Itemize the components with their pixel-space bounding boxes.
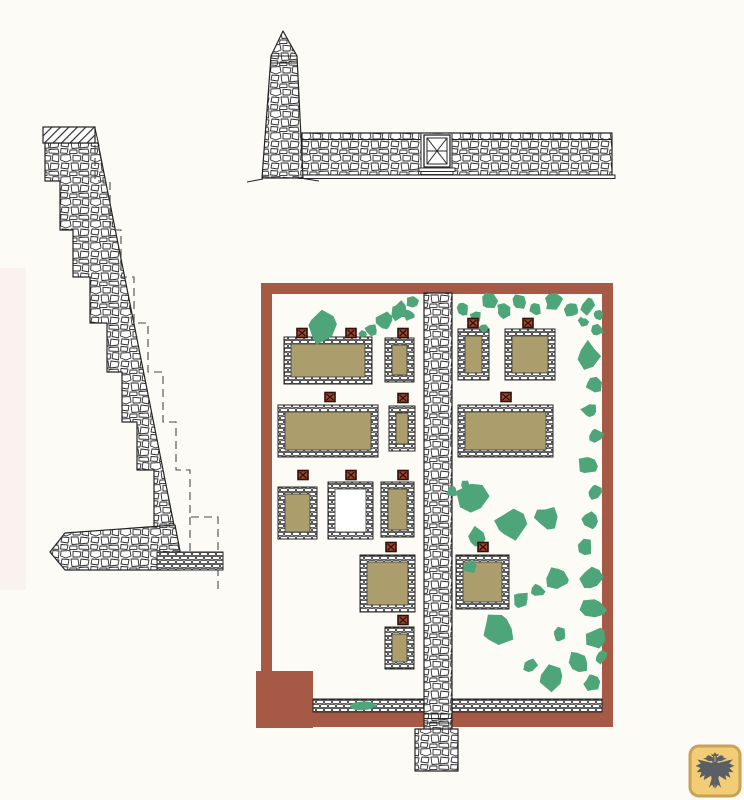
post-marker	[398, 394, 408, 403]
building	[360, 555, 415, 612]
gate-threshold-step	[421, 172, 453, 175]
building	[381, 482, 414, 537]
building-interior-open	[335, 489, 366, 532]
post-marker	[325, 393, 335, 402]
central-dividing-wall	[424, 293, 452, 730]
building	[278, 487, 317, 539]
building	[278, 405, 378, 457]
post-marker	[468, 319, 478, 328]
wooden-gate	[419, 134, 455, 175]
building-interior	[392, 634, 407, 662]
post-marker	[386, 543, 396, 552]
paper-background	[0, 0, 744, 800]
building-interior	[465, 336, 482, 373]
post-marker	[298, 471, 308, 480]
post-marker	[501, 393, 511, 402]
post-marker	[398, 329, 408, 338]
building	[458, 405, 553, 457]
bottom-stone-strip-east	[452, 699, 602, 712]
paper-tint-strip	[0, 268, 26, 590]
section-cap-hatch	[43, 127, 95, 143]
building-interior	[392, 345, 407, 375]
building	[389, 406, 415, 451]
building-interior	[285, 412, 371, 450]
post-marker	[523, 319, 533, 328]
wall-base-course	[299, 175, 615, 179]
building	[385, 627, 414, 669]
post-marker	[398, 616, 408, 625]
building	[328, 482, 373, 539]
post-marker	[398, 471, 408, 480]
perimeter-wall-top	[261, 283, 613, 294]
building	[385, 338, 414, 382]
imperial-eagle-badge	[690, 746, 740, 796]
archaeological-drawing-canvas	[0, 0, 744, 800]
perimeter-wall-left	[261, 283, 272, 727]
wall-footing-block	[415, 729, 458, 771]
section-base-strip	[157, 552, 223, 570]
building	[458, 329, 489, 380]
building-interior	[291, 344, 365, 377]
building	[284, 337, 372, 384]
building-interior	[396, 413, 408, 444]
gate-threshold-step	[419, 168, 455, 172]
post-marker	[346, 471, 356, 480]
building-interior	[512, 336, 548, 373]
building-interior	[285, 494, 310, 532]
post-marker	[297, 329, 307, 338]
post-marker	[346, 329, 356, 338]
post-marker	[478, 543, 488, 552]
building-interior	[367, 562, 408, 605]
drawing-page	[0, 0, 744, 800]
corner-bastion	[256, 671, 313, 728]
building	[456, 555, 509, 609]
building-interior	[388, 489, 407, 530]
building-interior	[465, 412, 546, 450]
building	[505, 329, 555, 380]
